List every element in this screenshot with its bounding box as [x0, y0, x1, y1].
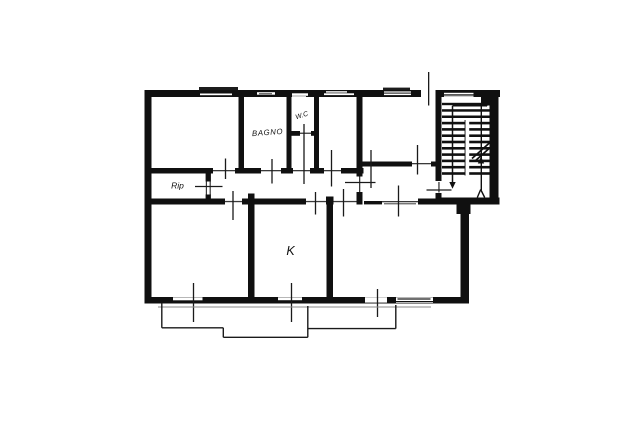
- svg-text:K: K: [286, 244, 295, 258]
- svg-text:Rip: Rip: [171, 181, 184, 191]
